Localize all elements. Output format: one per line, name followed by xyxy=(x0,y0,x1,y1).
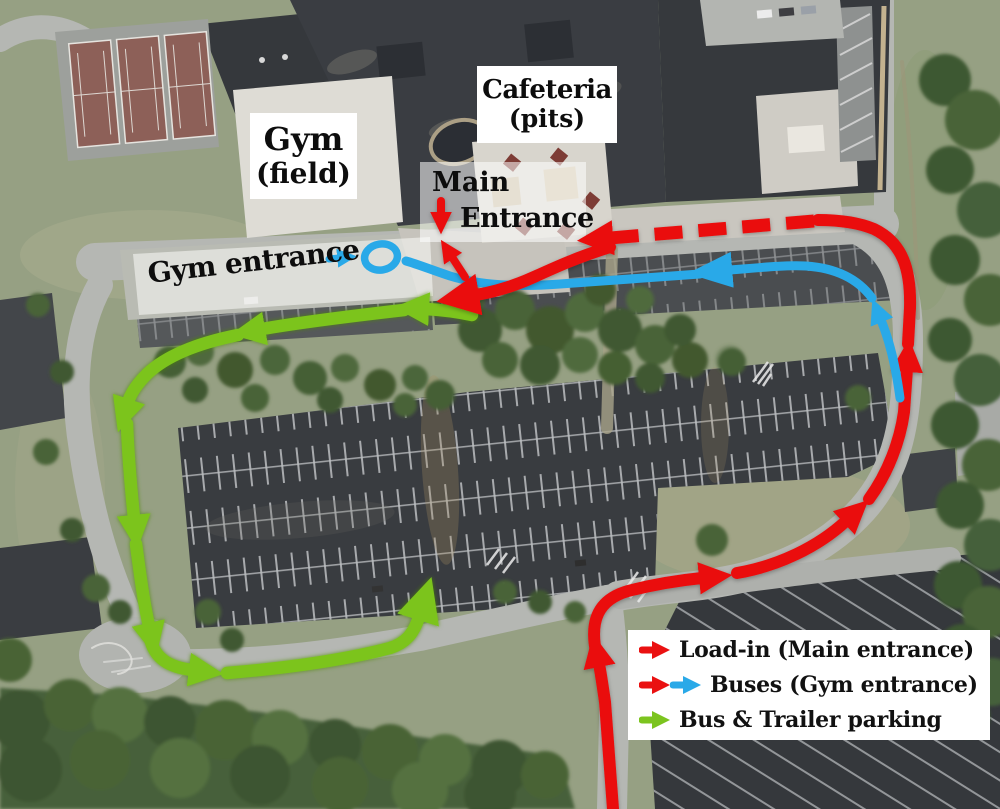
legend-label-buses: Buses (Gym entrance) xyxy=(710,672,978,698)
cafeteria-pits-label: Cafeteria (pits) xyxy=(477,66,617,143)
legend-row-load-in: Load-in (Main entrance) xyxy=(628,633,990,668)
legend-green-arrow-icon xyxy=(639,708,672,732)
cafeteria-label-line1: Cafeteria xyxy=(477,76,617,105)
main-entrance-line2: Entrance xyxy=(460,204,594,234)
legend-red-arrow-icon xyxy=(639,673,672,697)
legend-label-load-in: Load-in (Main entrance) xyxy=(679,637,974,663)
legend: Load-in (Main entrance) Buses (Gym entra… xyxy=(628,630,990,740)
gym-label-line2: (field) xyxy=(250,158,357,189)
legend-label-parking: Bus & Trailer parking xyxy=(679,707,942,733)
legend-row-buses: Buses (Gym entrance) xyxy=(628,668,990,703)
gym-label-line1: Gym xyxy=(250,122,357,158)
main-entrance-line1: Main xyxy=(432,168,509,198)
legend-red-arrow-icon xyxy=(639,638,672,662)
legend-row-parking: Bus & Trailer parking xyxy=(628,703,990,738)
tennis-courts xyxy=(55,19,219,161)
legend-blue-arrow-icon xyxy=(670,673,703,697)
main-entrance-label: Main Entrance xyxy=(420,162,586,242)
gym-field-label: Gym (field) xyxy=(250,113,357,199)
cafeteria-label-line2: (pits) xyxy=(477,105,617,133)
campus-map: Gym (field) Cafeteria (pits) Main Entran… xyxy=(0,0,1000,809)
